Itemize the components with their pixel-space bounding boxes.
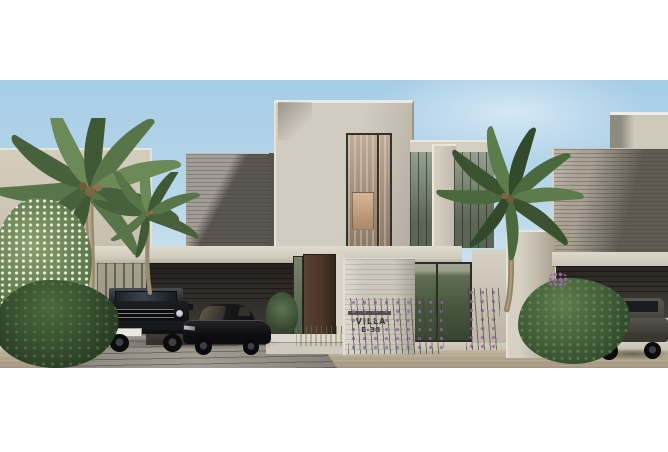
- sedan-rear-glass: [238, 307, 252, 316]
- palm-tree-center: [430, 120, 590, 355]
- grass-tuft-curb: [296, 326, 342, 346]
- gray-suv-wheel-rear: [644, 342, 661, 359]
- real-estate-photo-frame: { "sign": { "line1": "VILLA", "line2": "…: [0, 0, 668, 452]
- sedan-wheel-rear: [243, 339, 259, 355]
- tower-recess-shadow: [278, 102, 312, 140]
- tower-window: [346, 133, 392, 248]
- tower-window-artwork: [352, 192, 374, 230]
- villa-photo: VILLA E-38: [0, 80, 668, 368]
- tower-window-mullion: [377, 135, 379, 246]
- glass-curtain-wall-left: [410, 152, 432, 248]
